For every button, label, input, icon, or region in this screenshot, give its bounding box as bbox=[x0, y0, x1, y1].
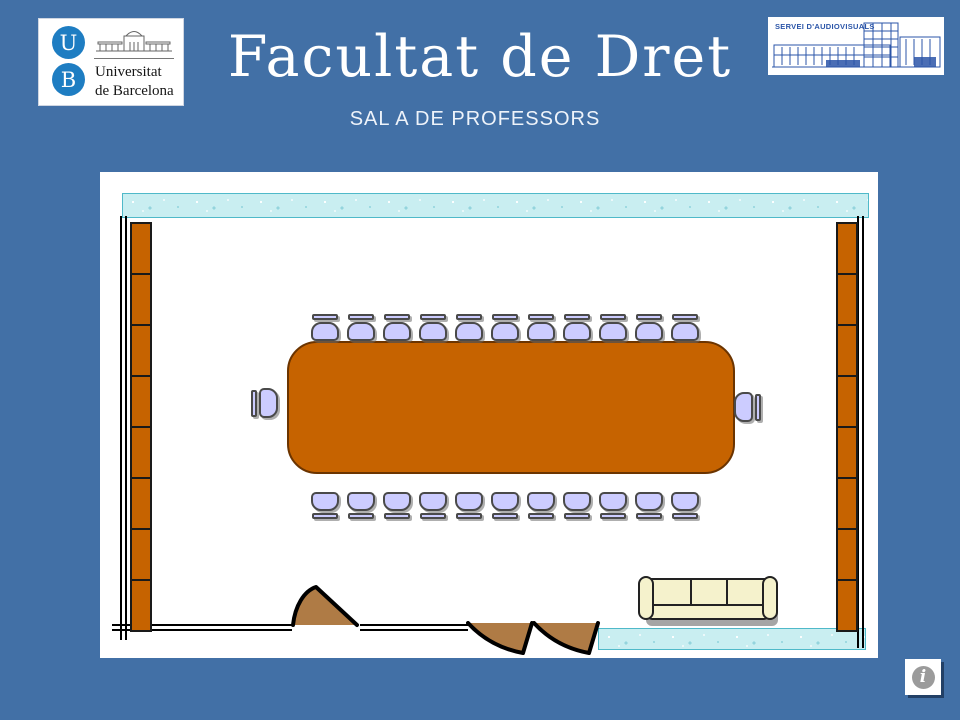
chair-back bbox=[636, 513, 662, 519]
chair-row-top bbox=[310, 314, 700, 341]
chair-back bbox=[348, 314, 374, 320]
chair-back bbox=[564, 314, 590, 320]
shelf-right bbox=[836, 222, 858, 632]
chair-back bbox=[600, 314, 626, 320]
chair-back bbox=[492, 314, 518, 320]
chair-seat bbox=[734, 392, 753, 422]
chair bbox=[490, 492, 520, 519]
chair bbox=[598, 492, 628, 519]
chair bbox=[598, 314, 628, 341]
chair-back bbox=[420, 513, 446, 519]
meeting-table bbox=[287, 341, 735, 474]
slide: U B Universitat de Barcelona Facultat de… bbox=[0, 0, 960, 720]
info-button[interactable]: i bbox=[905, 659, 941, 695]
door-single bbox=[290, 582, 362, 628]
chair bbox=[670, 314, 700, 341]
chair-seat bbox=[491, 322, 519, 341]
shelf-segment bbox=[130, 273, 152, 326]
sofa bbox=[638, 576, 778, 624]
chair-back bbox=[384, 513, 410, 519]
chair-back bbox=[672, 513, 698, 519]
audiovisuals-logo: SERVEI D'AUDIOVISUALS bbox=[768, 17, 944, 75]
sofa-cushions bbox=[653, 579, 763, 604]
chair bbox=[382, 492, 412, 519]
chair-seat bbox=[671, 322, 699, 341]
chair bbox=[634, 314, 664, 341]
wall-bottom-middle bbox=[360, 624, 468, 631]
chair-back bbox=[528, 513, 554, 519]
chair bbox=[634, 492, 664, 519]
chair bbox=[454, 314, 484, 341]
chair-back bbox=[564, 513, 590, 519]
chair-seat bbox=[635, 322, 663, 341]
chair-back bbox=[456, 314, 482, 320]
chair-back bbox=[348, 513, 374, 519]
window-band-top bbox=[122, 193, 869, 218]
chair bbox=[526, 492, 556, 519]
shelf-segment bbox=[836, 375, 858, 428]
chair bbox=[310, 492, 340, 519]
shelf-segment bbox=[130, 375, 152, 428]
shelf-segment bbox=[130, 324, 152, 377]
shelf-segment bbox=[836, 477, 858, 530]
chair bbox=[490, 314, 520, 341]
chair bbox=[526, 314, 556, 341]
wall-right bbox=[857, 216, 864, 648]
shelf-segment bbox=[130, 222, 152, 275]
sofa-seat bbox=[647, 604, 769, 620]
sofa-arm-left bbox=[638, 576, 654, 620]
chair-seat bbox=[671, 492, 699, 511]
sofa-arm-right bbox=[762, 576, 778, 620]
chair-back bbox=[755, 394, 761, 421]
shelf-segment bbox=[836, 579, 858, 632]
sofa-cushion-divider bbox=[726, 579, 728, 604]
chair-back bbox=[492, 513, 518, 519]
chair-seat bbox=[259, 388, 278, 418]
door-double bbox=[466, 621, 602, 659]
chair-seat bbox=[311, 492, 339, 511]
chair-right-end bbox=[733, 391, 761, 425]
chair-back bbox=[456, 513, 482, 519]
chair bbox=[562, 314, 592, 341]
chair-back bbox=[384, 314, 410, 320]
chair bbox=[346, 492, 376, 519]
sofa-cushion-divider bbox=[690, 579, 692, 604]
chair bbox=[454, 492, 484, 519]
chair bbox=[418, 314, 448, 341]
chair-back bbox=[528, 314, 554, 320]
window-band-bottom bbox=[598, 628, 866, 650]
chair-seat bbox=[527, 492, 555, 511]
chair bbox=[251, 387, 279, 421]
chair-seat bbox=[347, 492, 375, 511]
chair-back bbox=[312, 513, 338, 519]
audiovisuals-label: SERVEI D'AUDIOVISUALS bbox=[775, 22, 875, 31]
shelf-segment bbox=[836, 324, 858, 377]
shelf-segment bbox=[130, 477, 152, 530]
chair-seat bbox=[599, 322, 627, 341]
shelf-segment bbox=[836, 222, 858, 275]
page-subtitle: SAL A DE PROFESSORS bbox=[0, 108, 950, 131]
chair-seat bbox=[491, 492, 519, 511]
shelf-segment bbox=[130, 579, 152, 632]
chair-back bbox=[636, 314, 662, 320]
chair-back bbox=[672, 314, 698, 320]
chair-seat bbox=[383, 322, 411, 341]
shelf-left bbox=[130, 222, 152, 632]
chair bbox=[382, 314, 412, 341]
floorplan bbox=[100, 172, 878, 658]
chair-seat bbox=[563, 492, 591, 511]
shelf-segment bbox=[130, 528, 152, 581]
shelf-segment bbox=[130, 426, 152, 479]
chair-back bbox=[251, 390, 257, 417]
chair bbox=[733, 391, 761, 425]
shelf-segment bbox=[836, 426, 858, 479]
chair-seat bbox=[599, 492, 627, 511]
shelf-segment bbox=[836, 273, 858, 326]
chair bbox=[418, 492, 448, 519]
chair-seat bbox=[635, 492, 663, 511]
chair-seat bbox=[455, 492, 483, 511]
chair-seat bbox=[419, 322, 447, 341]
chair-back bbox=[600, 513, 626, 519]
chair bbox=[346, 314, 376, 341]
chair-seat bbox=[383, 492, 411, 511]
chair bbox=[562, 492, 592, 519]
chair-back bbox=[312, 314, 338, 320]
chair bbox=[670, 492, 700, 519]
chair-back bbox=[420, 314, 446, 320]
chair-seat bbox=[527, 322, 555, 341]
chair-seat bbox=[563, 322, 591, 341]
chair-row-bottom bbox=[310, 492, 700, 519]
chair-seat bbox=[347, 322, 375, 341]
info-icon: i bbox=[912, 666, 935, 689]
chair-seat bbox=[311, 322, 339, 341]
chair-left-end bbox=[251, 387, 279, 421]
chair-seat bbox=[455, 322, 483, 341]
chair bbox=[310, 314, 340, 341]
wall-left bbox=[120, 216, 127, 640]
chair-seat bbox=[419, 492, 447, 511]
shelf-segment bbox=[836, 528, 858, 581]
